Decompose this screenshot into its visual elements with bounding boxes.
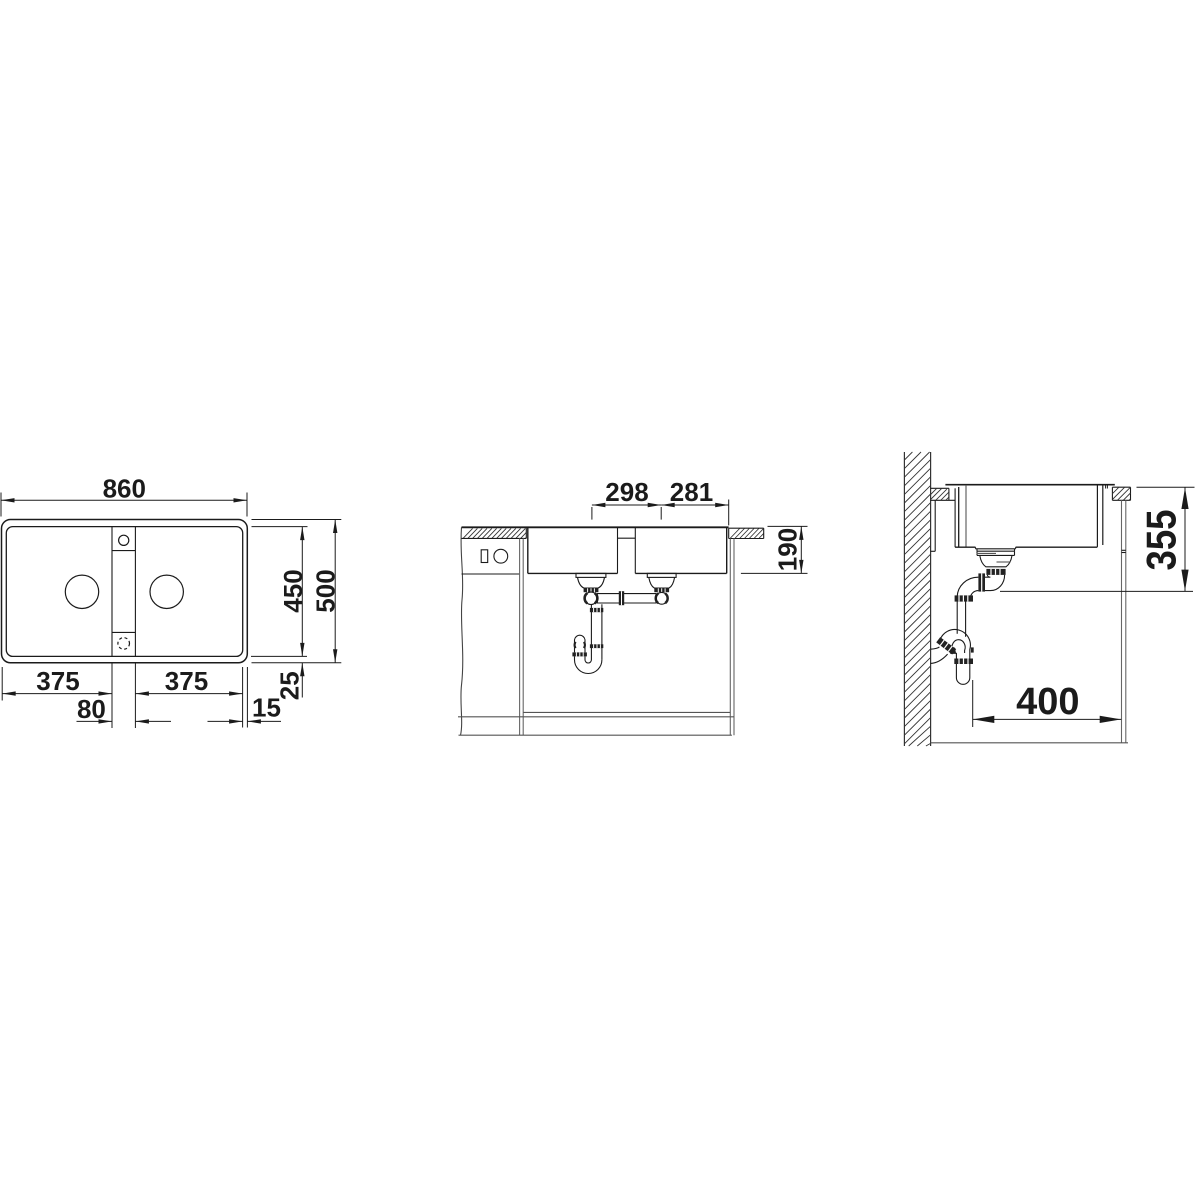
svg-text:190: 190 [772,528,802,571]
svg-text:15: 15 [252,692,281,722]
svg-text:281: 281 [670,477,713,507]
svg-text:860: 860 [103,473,146,503]
svg-text:355: 355 [1137,510,1184,571]
svg-text:375: 375 [36,666,79,696]
svg-text:450: 450 [278,569,308,612]
svg-text:375: 375 [165,666,208,696]
svg-text:80: 80 [77,694,106,724]
svg-text:500: 500 [311,569,341,612]
svg-text:298: 298 [605,477,648,507]
svg-text:400: 400 [1016,681,1079,723]
